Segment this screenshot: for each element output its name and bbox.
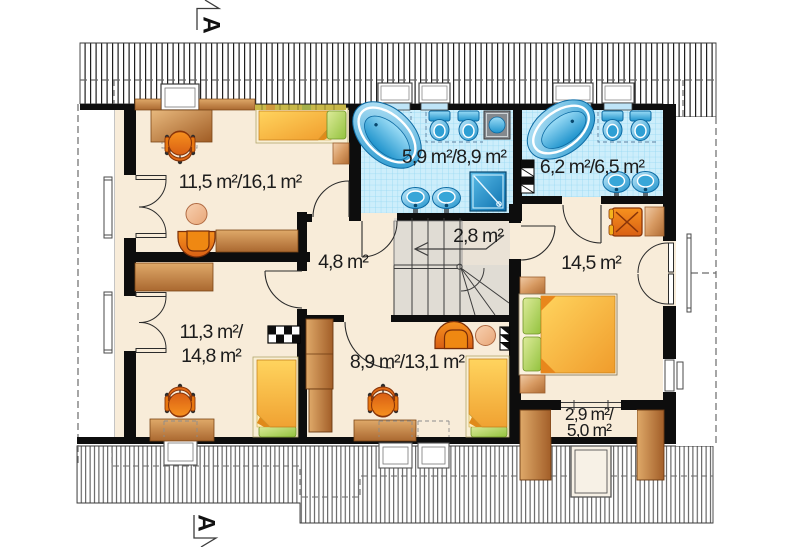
svg-text:2,8 m²: 2,8 m²	[453, 225, 504, 247]
svg-text:5,9 m²/8,9 m²: 5,9 m²/8,9 m²	[402, 146, 508, 168]
svg-text:14,5 m²: 14,5 m²	[561, 252, 622, 274]
svg-text:14,8 m²: 14,8 m²	[181, 345, 242, 367]
svg-text:A: A	[193, 514, 220, 531]
svg-text:11,3 m²/: 11,3 m²/	[180, 321, 244, 343]
svg-text:8,9 m²/13,1 m²: 8,9 m²/13,1 m²	[350, 351, 466, 373]
svg-text:6,2 m²/6,5 m²: 6,2 m²/6,5 m²	[540, 156, 646, 178]
svg-text:A: A	[198, 16, 225, 33]
svg-text:11,5 m²/16,1 m²: 11,5 m²/16,1 m²	[179, 171, 303, 193]
svg-text:4,8 m²: 4,8 m²	[318, 251, 369, 273]
svg-text:5,0 m²: 5,0 m²	[567, 420, 612, 440]
